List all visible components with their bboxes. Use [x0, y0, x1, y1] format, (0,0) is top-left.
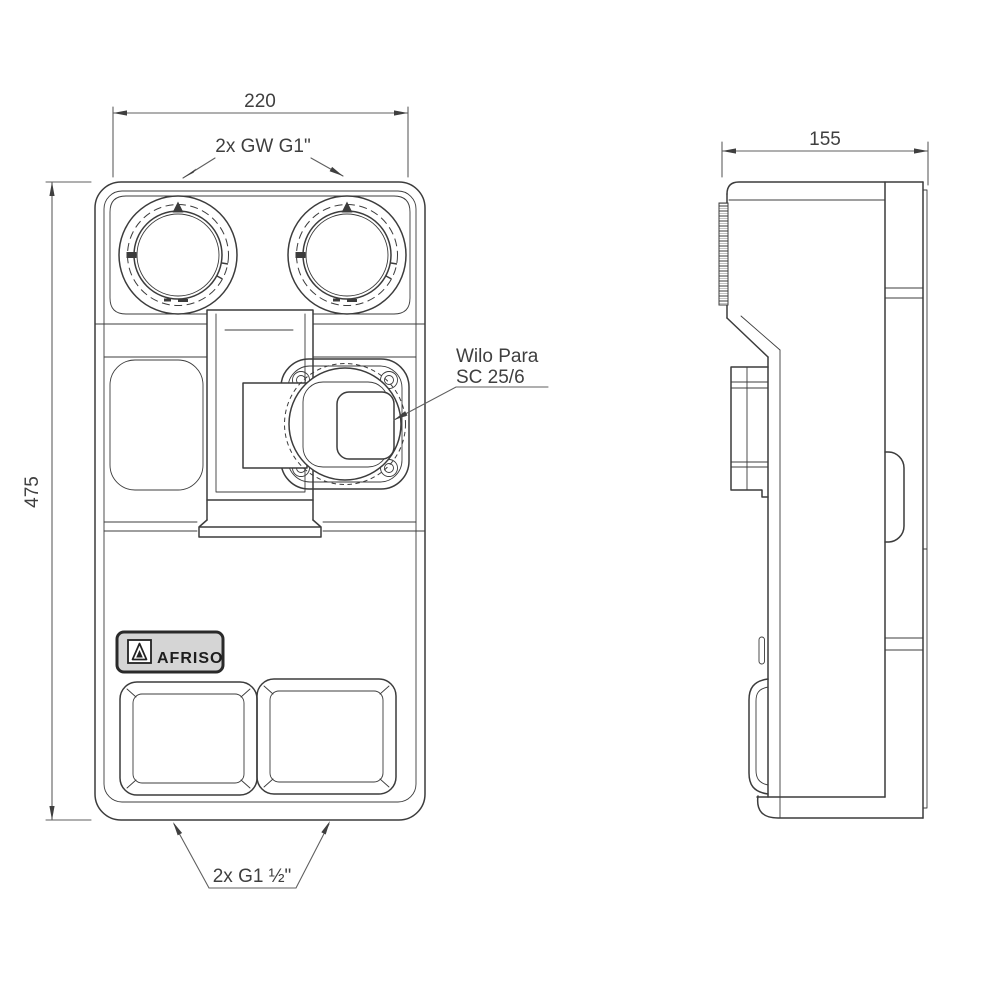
dim-height-475: 475: [22, 182, 91, 820]
dim-depth-label: 155: [809, 129, 841, 150]
pump-label-line2: SC 25/6: [456, 367, 525, 388]
top-ports-callout: 2x GW G1": [183, 136, 343, 178]
afriso-badge: AFRISO: [117, 632, 223, 672]
side-chamfer-inner: [741, 316, 780, 350]
annotations: 220 2x GW G1" 475 155 Wilo Para: [22, 91, 928, 888]
front-body-outline: [95, 182, 425, 820]
body-seam-upper: [95, 324, 425, 357]
valve-dial-right: [288, 196, 406, 314]
drawing-canvas: AFRISO: [0, 0, 1000, 1000]
insulation-pillow-left: [120, 682, 257, 795]
dim-height-label: 475: [22, 476, 43, 508]
afriso-badge-label: AFRISO: [157, 650, 223, 667]
insulation-pillow-right: [257, 679, 396, 794]
side-pump-motor: [731, 367, 768, 497]
pump-callout: Wilo Para SC 25/6: [394, 346, 548, 420]
top-ports-label: 2x GW G1": [215, 136, 310, 157]
side-top-edge: [727, 182, 923, 194]
side-dial-knurl: [719, 203, 728, 305]
pump-label-line1: Wilo Para: [456, 346, 539, 367]
bottom-ports-callout: 2x G1 ½": [173, 821, 330, 888]
left-insulation-recess: [110, 360, 203, 490]
side-chamfer-outer: [727, 318, 768, 357]
pump-assembly: [243, 359, 409, 489]
bottom-ports-label: 2x G1 ½": [213, 866, 292, 887]
pump-display-window: [337, 392, 394, 459]
valve-section-contour: [110, 196, 410, 314]
afriso-logo-icon: [128, 640, 151, 663]
side-view: [719, 182, 927, 818]
dim-depth-155: 155: [722, 129, 928, 185]
valve-dial-left: [119, 196, 237, 314]
dim-width-label: 220: [244, 91, 276, 112]
technical-drawing: AFRISO: [0, 0, 1000, 1000]
front-body-inner-contour: [104, 191, 416, 802]
side-clip-slot: [759, 637, 765, 664]
side-bottom-edge: [758, 796, 923, 818]
side-cable-cover-bump: [885, 452, 904, 542]
side-pillow-bulge: [749, 679, 768, 794]
dim-width-220: 220: [113, 91, 408, 177]
front-view: AFRISO: [95, 182, 425, 820]
